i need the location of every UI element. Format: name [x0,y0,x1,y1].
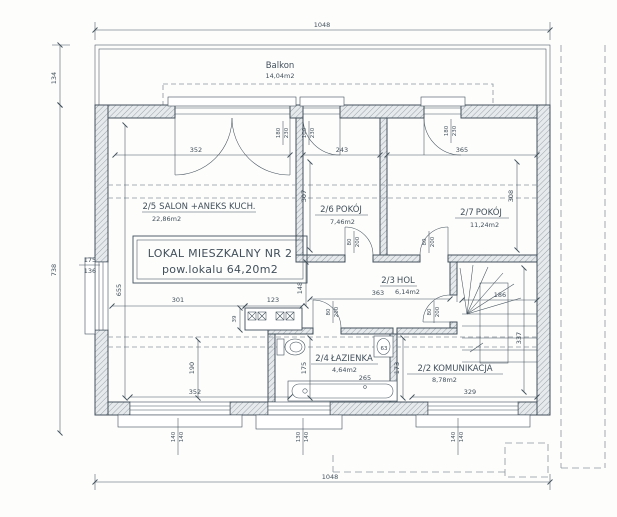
room-name: ŁAZIENKA [330,354,373,364]
dim-left-height: 738 [50,264,58,276]
dim-stair-width: 186 [494,291,506,299]
dim-pokoj27-width: 365 [456,146,468,154]
room-id: 2/7 [460,208,474,218]
svg-text:180: 180 [444,125,450,136]
dim-tub-length: 265 [359,374,371,382]
svg-text:200: 200 [334,306,340,317]
dim-passage-width: 148 [296,282,304,294]
room-area: 11,24m2 [470,221,499,229]
svg-text:140: 140 [459,431,465,442]
bottom-window-left [118,402,242,427]
room-name: POKÓJ [476,206,502,218]
svg-text:140: 140 [171,431,177,442]
dim-salon-bottom: 301 [172,296,184,304]
room-name: HOL [397,276,415,286]
kitchen-counter [245,308,302,330]
svg-text:130: 130 [296,431,302,442]
dim-salon-opening: 352 [190,146,202,154]
svg-text:136: 136 [84,267,96,275]
room-area: 8,78m2 [432,376,457,384]
svg-text:80: 80 [347,238,353,245]
floor-plan-drawing: 1048 1048 134 738 Balkon 14,04m2 [0,0,617,517]
svg-text:230: 230 [310,127,316,138]
svg-text:175: 175 [84,256,96,264]
svg-text:80: 80 [326,308,332,315]
svg-text:2/6POKÓJ: 2/6POKÓJ [320,203,362,215]
dim-salon-lower: 190 [188,362,196,374]
svg-text:2/4ŁAZIENKA: 2/4ŁAZIENKA [315,354,373,364]
svg-text:140: 140 [451,431,457,442]
svg-text:140: 140 [179,431,185,442]
room-id: 2/6 [320,205,334,215]
dim-bottom-window-left: 352 [189,388,201,396]
bottom-window-mid [256,402,342,429]
room-id: 2/3 [381,276,395,286]
room-area: 4,64m2 [332,366,357,374]
svg-text:200: 200 [355,236,361,247]
svg-text:200: 200 [430,236,436,247]
svg-text:100: 100 [302,127,308,138]
dim-counter-depth: 39 [232,315,238,322]
balcony-label: Balkon [266,61,295,71]
dim-bath-left: 175 [300,362,308,374]
dim-komunikacja-width: 329 [464,388,476,396]
unit-area: pow.lokalu 64,20m2 [162,263,278,276]
dim-counter-width: 123 [267,296,279,304]
dim-pokoj27-depth: 308 [507,190,515,202]
svg-text:80: 80 [422,238,428,245]
dim-top-total: 1048 [314,21,331,29]
dim-sink-width: 63 [381,346,388,352]
svg-text:140: 140 [304,431,310,442]
dim-balcony-depth: 134 [50,72,58,84]
bottom-window-right [416,402,530,427]
svg-text:2/7POKÓJ: 2/7POKÓJ [460,206,502,218]
svg-text:200: 200 [435,306,441,317]
room-id: 2/2 [417,364,431,374]
room-name: KOMUNIKACJA [433,364,493,374]
dim-hol-width: 363 [372,289,384,297]
svg-text:230: 230 [284,127,290,138]
room-id: 2/4 [315,354,329,364]
dim-bottom-total: 1048 [322,473,339,481]
room-area: 7,46m2 [330,218,355,226]
balcony-area: 14,04m2 [265,72,294,80]
bathtub-icon [288,381,397,401]
room-area: 22,86m2 [152,215,181,223]
svg-text:80: 80 [427,308,433,315]
room-name: POKÓJ [336,203,362,215]
dim-pokoj26-width: 243 [336,146,348,154]
toilet-icon [277,339,305,355]
dim-stair-run: 337 [515,332,523,344]
dim-salon-depth: 655 [115,284,123,296]
unit-title: LOKAL MIESZKALNY NR 2 [148,247,293,260]
dim-bath-right: 173 [393,362,401,374]
dim-pokoj26-depth: 307 [300,190,308,202]
svg-text:230: 230 [452,125,458,136]
room-name: SALON +ANEKS KUCH. [159,202,255,212]
room-area: 6,14m2 [395,288,420,296]
floor-plan-sheet: 1048 1048 134 738 Balkon 14,04m2 [0,0,617,517]
svg-text:2/2KOMUNIKACJA: 2/2KOMUNIKACJA [417,364,492,374]
svg-text:2/3HOL: 2/3HOL [381,276,415,286]
room-id: 2/5 [142,202,156,212]
svg-text:180: 180 [276,127,282,138]
svg-text:2/5SALON +ANEKS KUCH.: 2/5SALON +ANEKS KUCH. [142,202,255,212]
